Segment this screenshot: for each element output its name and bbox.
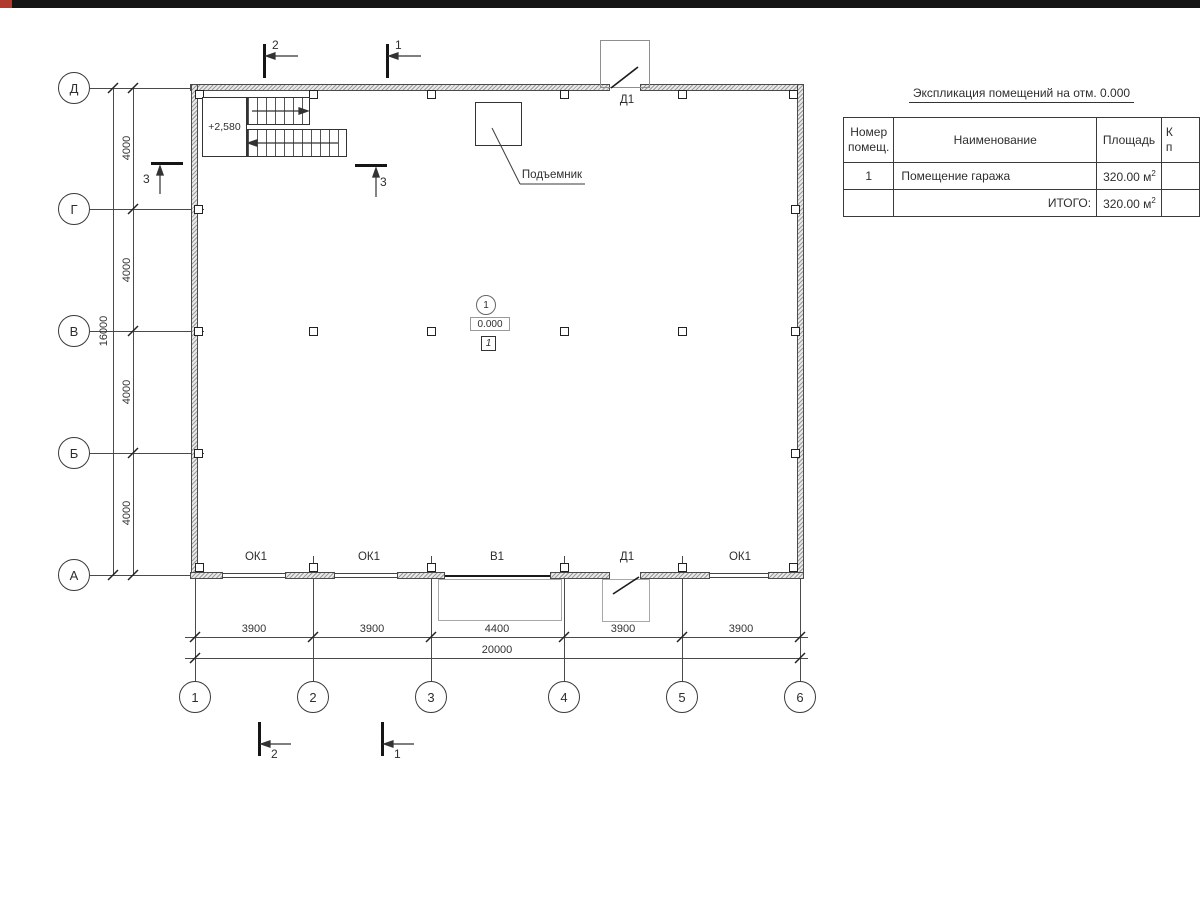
dim-line-horizontal-total [185,658,808,659]
window-label-3: ОК1 [729,551,751,563]
section-bar-top-2 [263,44,266,78]
interior-column [678,327,687,336]
section-label-right-3: 3 [380,175,387,189]
pilaster [791,327,800,336]
dim-4000-1: 4000 [121,136,133,160]
dim-3900-4: 3900 [729,623,753,635]
section-bar-bottom-1 [381,722,384,756]
pilaster [309,90,318,99]
dim-20000: 20000 [482,644,513,656]
pilaster [560,90,569,99]
dim-line-horizontal-segments [185,637,808,638]
wall-bottom-seg2 [285,572,335,579]
wall-top-left [190,84,610,91]
stair-landing: +2,580 [202,97,247,157]
schedule-header-row: Номер помещ. Наименование Площадь К п [844,118,1200,163]
floor-mark-box: 1 [481,336,496,351]
grid-line-row-a [90,575,194,576]
window-label-2: ОК1 [358,551,380,563]
pilaster [194,205,203,214]
grid-bubble-row-a: А [58,559,90,591]
lift-label: Подъемник [522,169,582,181]
grid-bubble-col-3: 3 [415,681,447,713]
section-bar-right-3 [355,164,387,167]
door-bottom-vestibule [602,579,650,622]
pilaster [560,563,569,572]
room-number-bubble: 1 [476,295,496,315]
total-area-cell: 320.00 м2 [1097,190,1162,217]
pilaster [427,90,436,99]
gate-swing-outline [438,579,562,621]
section-bar-top-1 [386,44,389,78]
row-number-cell: 1 [844,163,894,190]
lift-shaft [475,102,522,146]
dim-4000-3: 4000 [121,380,133,404]
pilaster [195,563,204,572]
dim-3900-2: 3900 [360,623,384,635]
level-mark: 0.000 [477,319,502,330]
door-top-vestibule [600,40,650,88]
section-bar-left-3 [151,162,183,165]
level-mark-box: 0.000 [470,317,510,331]
gate-leaf [445,575,550,577]
window-label-1: ОК1 [245,551,267,563]
wall-bottom-seg3 [397,572,445,579]
grid-bubble-row-b: Б [58,437,90,469]
row-name-cell: Помещение гаража [894,163,1097,190]
stair-level-label: +2,580 [208,121,240,133]
section-label-bottom-1: 1 [394,747,401,761]
wall-top-right [640,84,804,91]
pilaster [678,563,687,572]
dim-4000-2: 4000 [121,258,133,282]
header-room-number: Номер помещ. [844,118,894,163]
schedule-title: Экспликация помещений на отм. 0.000 [843,86,1200,100]
pilaster [789,563,798,572]
grid-bubble-col-2: 2 [297,681,329,713]
dim-line-vertical-segments [133,88,134,575]
pilaster [194,449,203,458]
wall-bottom-seg5 [640,572,710,579]
interior-column [309,327,318,336]
grid-line-row-d [90,88,190,89]
header-category-cut: К п [1161,118,1199,163]
pilaster [427,563,436,572]
door-top-label: Д1 [620,94,634,106]
total-label-cell: ИТОГО: [894,190,1097,217]
pilaster [789,90,798,99]
grid-bubble-col-1: 1 [179,681,211,713]
room-number: 1 [483,300,489,311]
interior-column [427,327,436,336]
dim-line-vertical-total [113,88,114,575]
pilaster [678,90,687,99]
grid-line-row-g [90,209,204,210]
header-area: Площадь [1097,118,1162,163]
wall-bottom-seg4 [550,572,610,579]
dim-4400: 4400 [485,623,509,635]
pilaster [194,327,203,336]
dim-4000-4: 4000 [121,501,133,525]
stair-flight-lower [247,129,347,157]
grid-bubble-col-6: 6 [784,681,816,713]
floor-plan-canvas: +2,580 Подъемник 1 0.000 1 [0,0,1200,900]
schedule-total-row: ИТОГО: 320.00 м2 [844,190,1200,217]
schedule-row-1: 1 Помещение гаража 320.00 м2 [844,163,1200,190]
top-edge-bar [0,0,1200,8]
floor-mark: 1 [486,338,492,349]
section-label-left-3: 3 [143,172,150,186]
grid-bubble-row-v: В [58,315,90,347]
pilaster [791,449,800,458]
pilaster [791,205,800,214]
window-ok1-3 [710,573,768,578]
window-ok1-1 [223,573,285,578]
grid-line-row-b [90,453,204,454]
grid-bubble-col-5: 5 [666,681,698,713]
section-label-top-2: 2 [272,38,279,52]
room-schedule-table: Номер помещ. Наименование Площадь К п 1 … [843,117,1200,217]
pilaster [309,563,318,572]
wall-bottom-seg6 [768,572,804,579]
gate-label: В1 [490,551,504,563]
grid-bubble-row-d: Д [58,72,90,104]
window-ok1-2 [335,573,397,578]
section-label-bottom-2: 2 [271,747,278,761]
section-label-top-1: 1 [395,38,402,52]
dim-3900-3: 3900 [611,623,635,635]
top-edge-accent [0,0,12,8]
dim-3900-1: 3900 [242,623,266,635]
section-bar-bottom-2 [258,722,261,756]
dim-16000: 16000 [98,316,110,347]
interior-column [560,327,569,336]
header-name: Наименование [894,118,1097,163]
wall-bottom-seg1 [190,572,223,579]
row-area-cell: 320.00 м2 [1097,163,1162,190]
door-bottom-label: Д1 [620,551,634,563]
grid-bubble-col-4: 4 [548,681,580,713]
stair-flight-upper [247,97,310,125]
grid-bubble-row-g: Г [58,193,90,225]
